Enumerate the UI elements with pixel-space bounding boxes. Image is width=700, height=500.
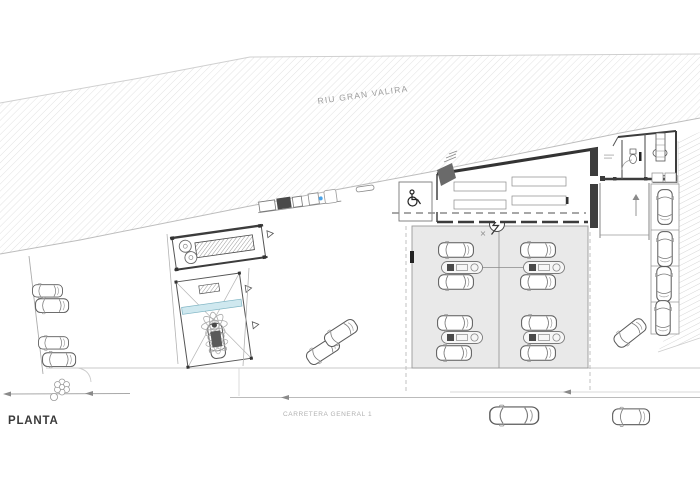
door-arrow — [245, 285, 252, 293]
road-arrow — [3, 390, 571, 401]
road-car — [490, 405, 650, 426]
street-parking — [29, 256, 76, 374]
road-label: CARRETERA GENERAL 1 — [283, 411, 372, 418]
door-arrow — [252, 321, 259, 329]
parked-car — [33, 283, 76, 367]
right-parking — [651, 173, 679, 335]
ladder-shelf — [656, 133, 665, 161]
door-arrow — [267, 230, 274, 238]
car-wash-bay — [174, 270, 263, 369]
accessible-room — [399, 182, 432, 221]
fuel-canopy — [410, 217, 588, 369]
tree-icon — [50, 379, 69, 401]
site-plan-svg: RIU GRAN VALIRA CARRETERA GENERAL 1 — [0, 0, 700, 500]
site-plan: RIU GRAN VALIRA CARRETERA GENERAL 1 — [0, 0, 700, 500]
dark-wall-band — [590, 148, 599, 228]
road: CARRETERA GENERAL 1 — [3, 368, 700, 426]
car-wash-tunnel — [170, 222, 277, 271]
toilet-icon — [630, 149, 637, 164]
plan-title: PLANTA — [8, 415, 59, 427]
